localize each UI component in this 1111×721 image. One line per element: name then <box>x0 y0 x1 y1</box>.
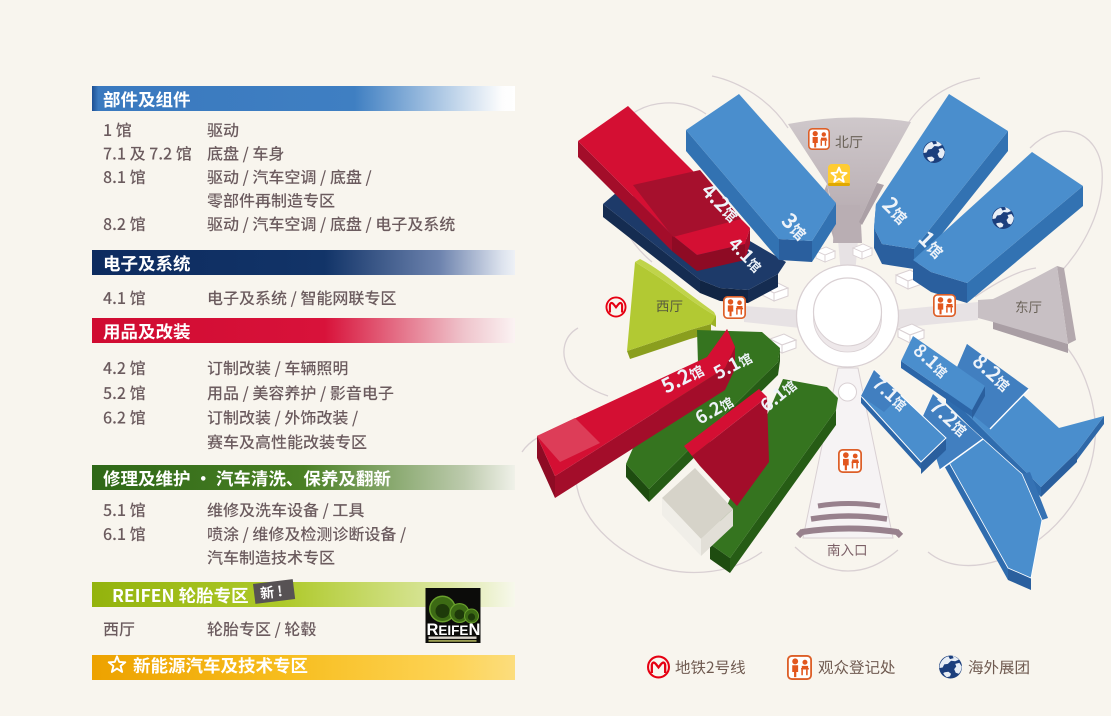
svg-text:REIFEN: REIFEN <box>427 621 481 639</box>
